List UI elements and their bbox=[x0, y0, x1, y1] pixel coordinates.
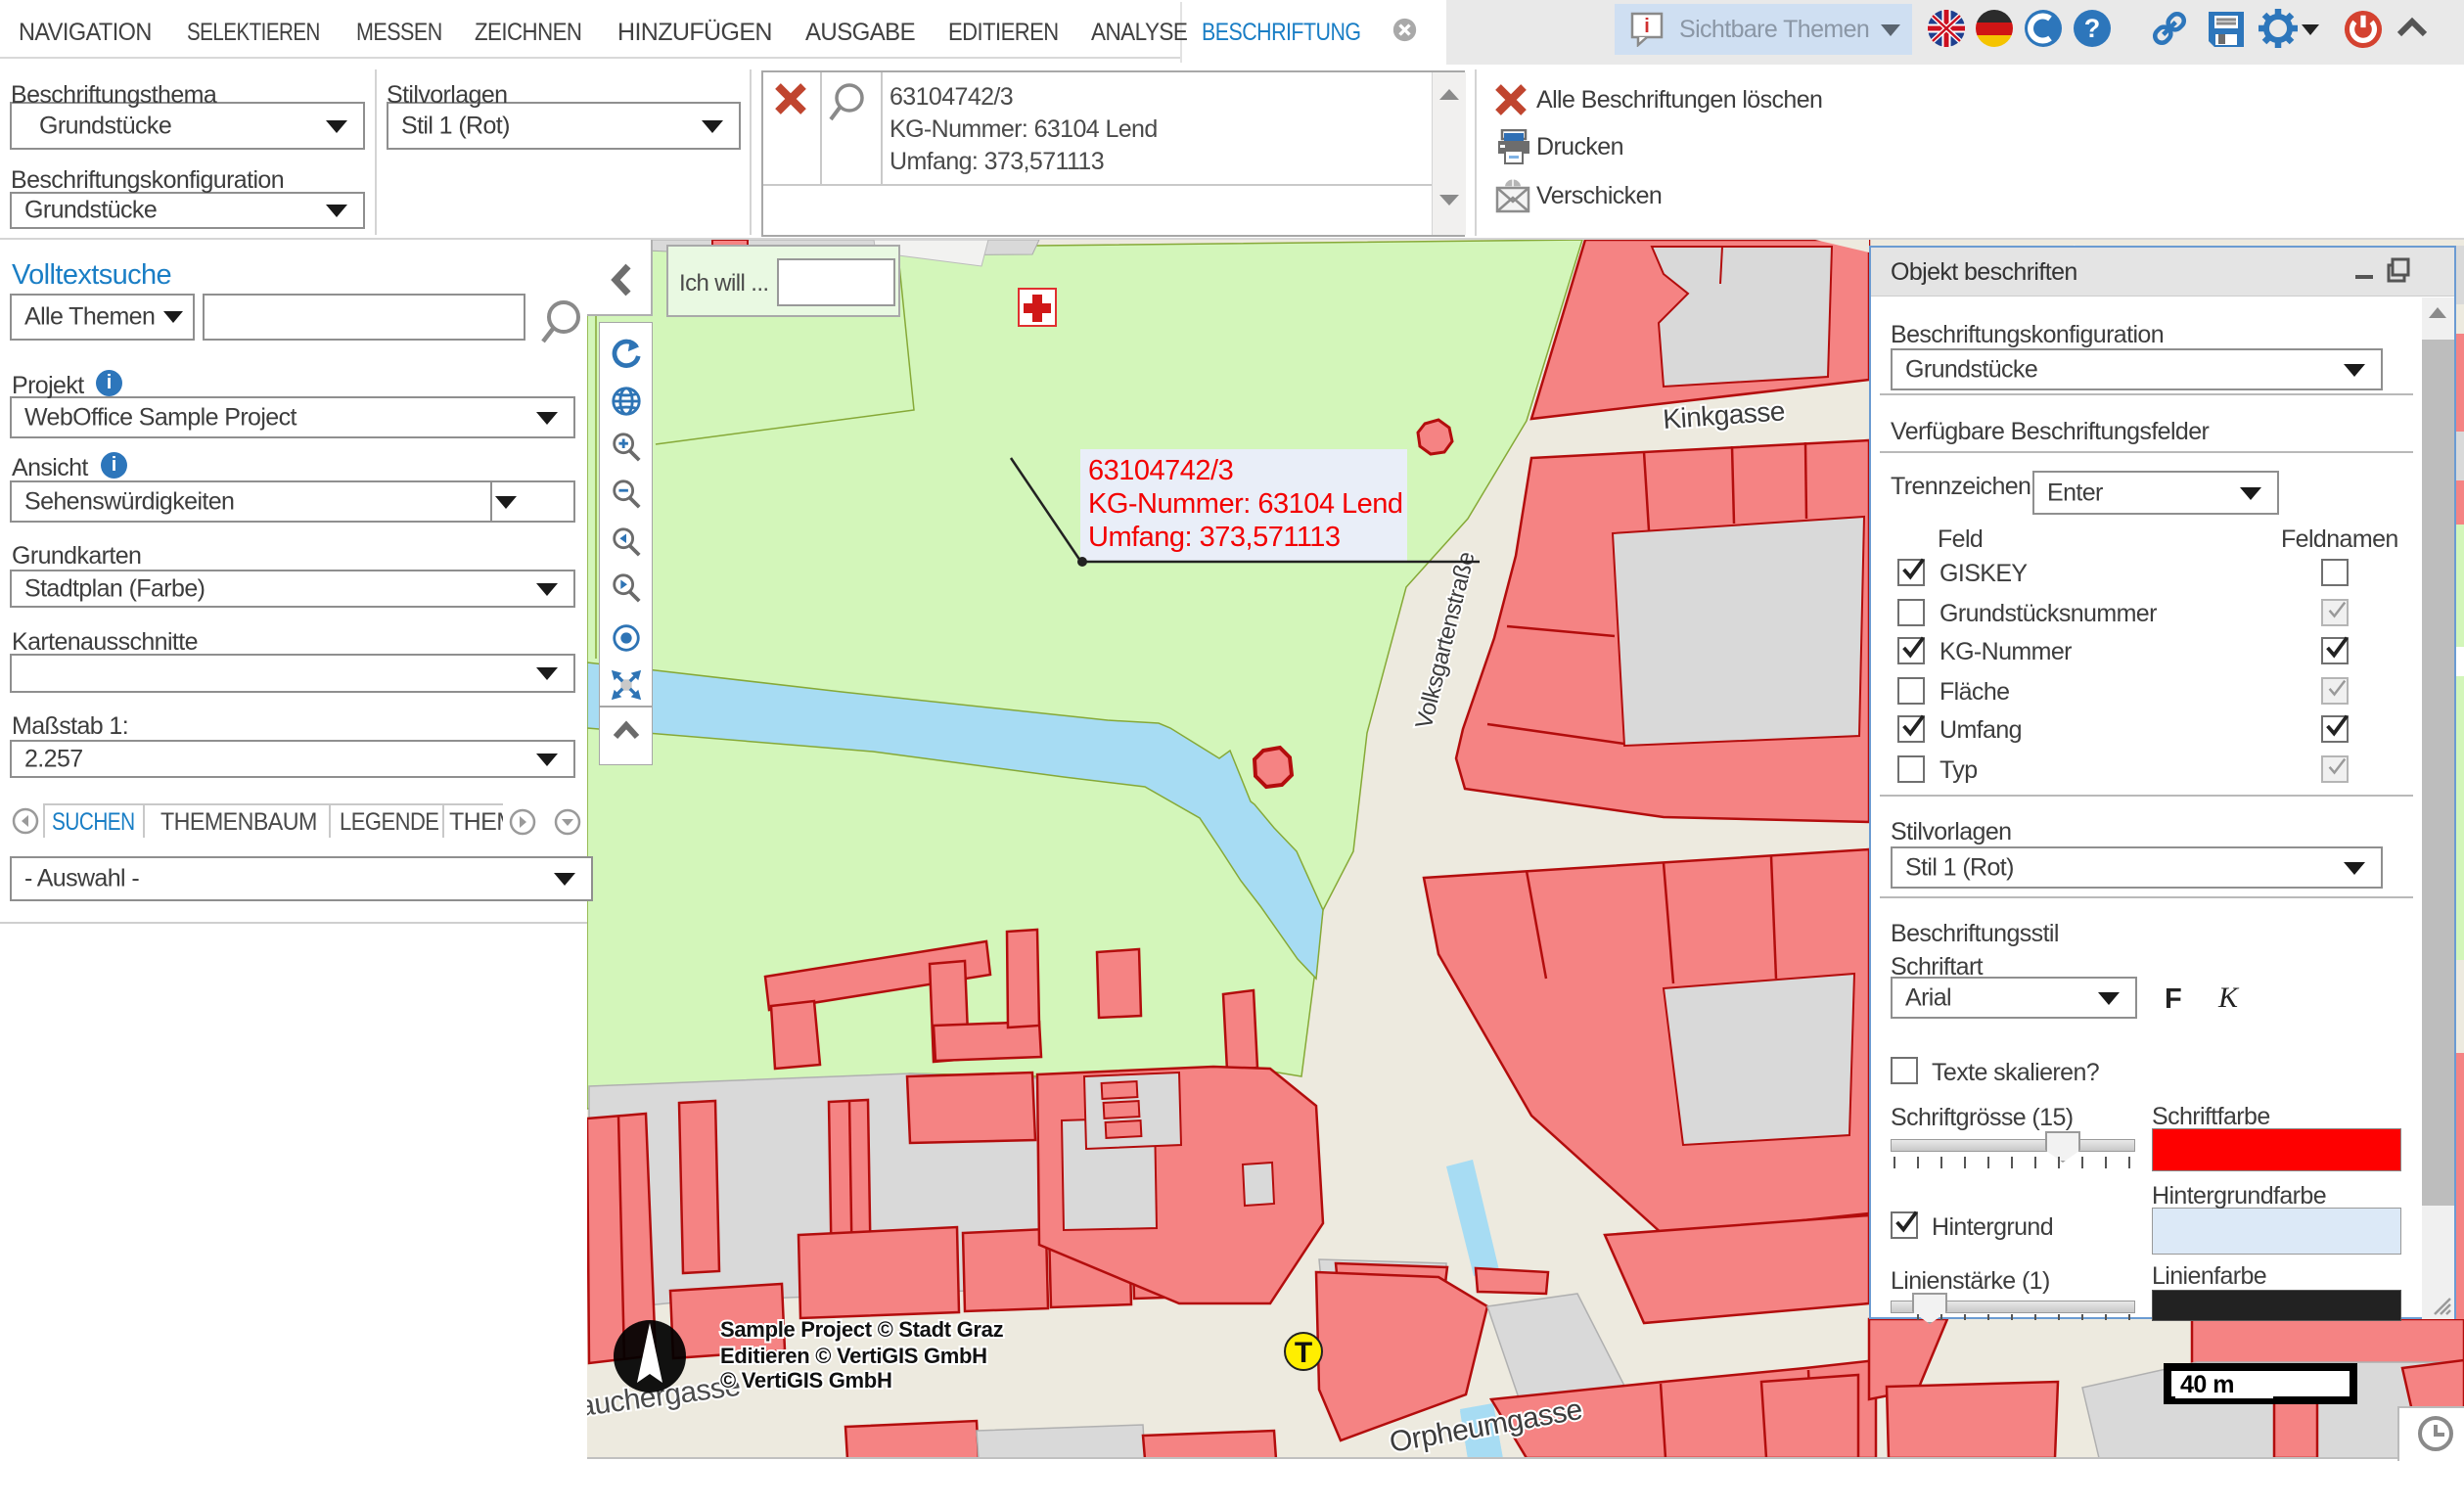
svg-text:40 m: 40 m bbox=[2180, 1371, 2234, 1398]
svg-text:i: i bbox=[1644, 16, 1650, 37]
svg-text:T: T bbox=[1295, 1337, 1312, 1369]
svg-text:© VertiGIS GmbH: © VertiGIS GmbH bbox=[720, 1368, 892, 1393]
svg-text:Editieren © VertiGIS GmbH: Editieren © VertiGIS GmbH bbox=[720, 1344, 987, 1368]
svg-text:Umfang: 373,571113: Umfang: 373,571113 bbox=[1088, 522, 1341, 553]
svg-text:?: ? bbox=[2084, 14, 2101, 43]
svg-text:Sample Project © Stadt Graz: Sample Project © Stadt Graz bbox=[720, 1317, 1004, 1342]
svg-text:KG-Nummer: 63104 Lend: KG-Nummer: 63104 Lend bbox=[1088, 488, 1403, 520]
svg-text:63104742/3: 63104742/3 bbox=[1088, 455, 1233, 486]
